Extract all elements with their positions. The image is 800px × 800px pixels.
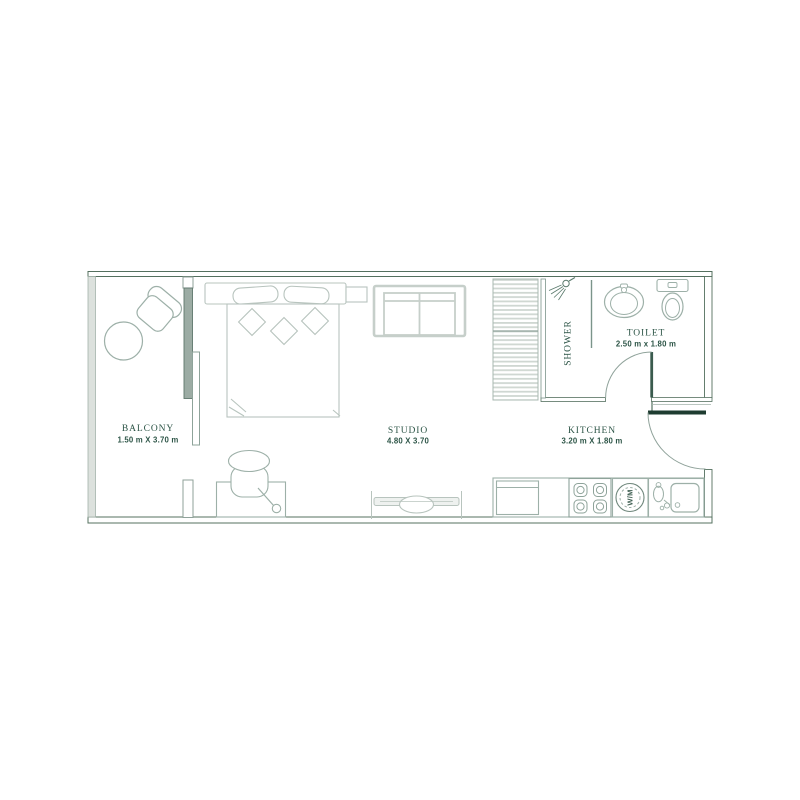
wc-toilet-icon xyxy=(657,280,688,321)
desk-chair-icon xyxy=(229,451,270,472)
bed-right-nightstand xyxy=(346,287,367,302)
toilet-door-swing-arc xyxy=(606,352,652,398)
wall-right-lower xyxy=(705,470,713,518)
doors xyxy=(606,352,706,469)
balcony-dimensions: 1.50 m X 3.70 m xyxy=(117,436,178,445)
toilet-label: TOILET xyxy=(627,329,665,339)
balcony-furniture xyxy=(105,283,185,360)
wall-shower-left xyxy=(541,279,546,398)
sofa-icon xyxy=(374,286,465,336)
wall-top xyxy=(88,272,712,277)
shower-head-icon xyxy=(549,278,575,301)
bed-icon xyxy=(205,283,367,417)
divider-top-stub xyxy=(183,277,193,288)
washing-machine-label: W/M xyxy=(626,489,635,505)
floor-plan-drawing: SHOWER xyxy=(0,0,800,800)
wall-toilet-bottom-right xyxy=(652,398,713,402)
desk-lamp-base xyxy=(272,504,280,512)
wall-toilet-bottom-left xyxy=(541,398,606,402)
studio-label: STUDIO xyxy=(388,426,428,436)
shower-label: SHOWER xyxy=(564,320,574,366)
wall-bottom xyxy=(88,517,712,523)
lounge-chair-icon xyxy=(132,283,185,336)
sliding-door-moving-panel xyxy=(193,352,200,445)
floor-plan-page: SHOWER xyxy=(0,0,800,800)
dressing-desk xyxy=(217,451,286,518)
tv-console-icon xyxy=(372,491,462,519)
wall-right-upper xyxy=(705,277,713,399)
toilet-door-leaf xyxy=(650,352,653,398)
kitchen-counter: W/M xyxy=(493,478,704,517)
balcony-sliding-door xyxy=(183,277,200,518)
balcony-label: BALCONY xyxy=(122,424,174,434)
toilet-room-fixtures xyxy=(605,280,689,321)
kitchen-label: KITCHEN xyxy=(568,426,616,436)
entry-door-leaf xyxy=(648,411,706,415)
studio-dimensions: 4.80 X 3.70 xyxy=(387,437,430,446)
sliding-door-fixed-panel xyxy=(184,288,193,399)
divider-bottom-stub xyxy=(183,480,193,518)
wall-left xyxy=(88,277,96,518)
room-labels: BALCONY 1.50 m X 3.70 m STUDIO 4.80 X 3.… xyxy=(117,329,676,446)
kitchen-dimensions: 3.20 m X 1.80 m xyxy=(561,437,622,446)
toilet-dimensions: 2.50 m x 1.80 m xyxy=(616,340,676,349)
washbasin-icon xyxy=(605,284,644,318)
wardrobe-icon xyxy=(493,279,538,400)
round-table-icon xyxy=(105,322,143,360)
shower-room: SHOWER xyxy=(549,278,575,366)
entry-door-swing-arc xyxy=(648,413,706,470)
